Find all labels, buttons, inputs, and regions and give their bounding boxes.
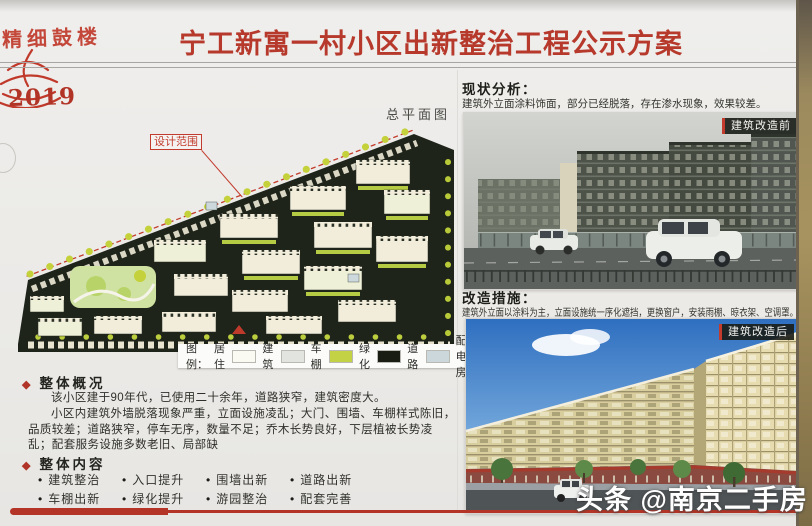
legend-swatch [377,350,401,363]
map-park [70,266,156,308]
legend-label: 绿化 [359,340,371,372]
analysis-body: 建筑外立面涂料饰面，部分已经脱落，存在渗水现象，效果较差。 [462,96,767,111]
diamond-bullet-icon: ◆ [22,460,33,472]
legend-label: 居住 [214,340,226,372]
legend-swatch [426,350,450,363]
legend-swatch [281,350,305,363]
content-item: 入口提升 [122,471,206,488]
legend-title: 图例： [186,340,208,372]
before-photo: 建筑改造前 [463,112,802,290]
board-crease [457,70,458,512]
overview-heading: ◆整体概况 [22,372,105,392]
photo-tag-before: 建筑改造前 [722,118,797,134]
overview-paragraphs: 该小区建于90年代，已使用二十余年，道路狭窄，建筑密度大。 小区内建筑外墙脱落现… [28,391,456,454]
legend-label: 车棚 [311,340,323,372]
design-scope-label: 设计范围 [150,134,202,150]
overview-para1: 该小区建于90年代，已使用二十余年，道路狭窄，建筑密度大。 [28,391,456,407]
map-legend: 图例： 居住 建筑 车棚 绿化 道路 配电房 [178,344,482,368]
content-item: 建筑整治 [38,471,122,488]
overview-para2: 小区内建筑外墙脱落现象严重，立面设施凌乱；大门、围墙、车棚样式陈旧，品质较差；道… [28,407,456,454]
content-item: 游园整治 [206,490,290,507]
contents-row-1: 建筑整治 入口提升 围墙出新 道路出新 [38,471,374,488]
content-item: 绿化提升 [122,490,206,507]
contents-row-2: 车棚出新 绿化提升 游园整治 配套完善 [38,490,374,507]
background-strip [799,0,812,526]
legend-swatch [329,350,353,363]
site-plan-map [8,128,456,364]
legend-label: 道路 [407,340,419,372]
photo-tag-after: 建筑改造后 [719,324,794,340]
analysis-heading: 现状分析： [462,78,537,98]
before-photo-illustration [464,113,801,289]
content-item: 围墙出新 [206,471,290,488]
content-item: 配套完善 [290,490,374,507]
site-plan-caption: 总平面图 [386,104,450,123]
page-title: 宁工新寓一村小区出新整治工程公示方案 [148,22,714,61]
content-item: 道路出新 [290,471,374,488]
measures-body: 建筑外立面以涂料为主，立面设施统一序化遮挡，更换窗户，安装雨棚、晾衣架、空调罩。 [462,304,797,319]
photo-edge-shade [0,0,812,12]
contents-heading: ◆整体内容 [22,453,105,473]
content-item: 车棚出新 [38,490,122,507]
year-label: 2019 [8,83,77,112]
notice-board-photo: 精细鼓楼 2019 宁工新寓一村小区出新整治工程公示方案 总平面图 [0,0,812,526]
header-divider [0,62,799,68]
street-level [464,232,801,289]
watermark: 头条 @南京二手房 [576,478,808,517]
diamond-bullet-icon: ◆ [22,379,33,391]
legend-swatch [232,350,256,363]
legend-label: 建筑 [262,340,274,372]
footer-ribbon [10,508,168,515]
